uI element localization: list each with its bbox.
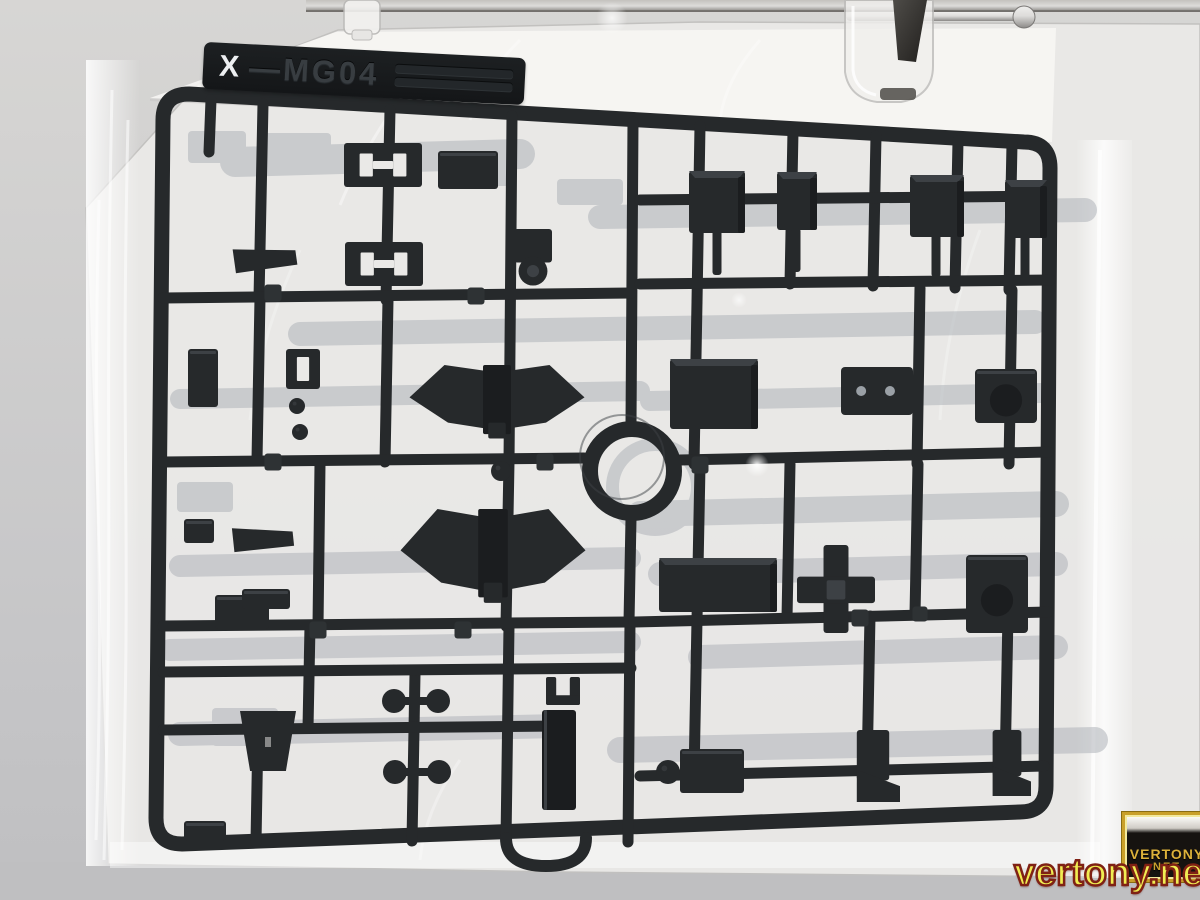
runner-bar: [385, 300, 388, 462]
runner-number-tag: [310, 622, 327, 639]
runner-number-tag: [265, 285, 282, 302]
runner-part-box: [680, 749, 744, 793]
runner-part-ball: [656, 760, 680, 784]
runner-bar: [917, 288, 920, 464]
runner-part-box: [188, 349, 218, 407]
runner-label-prefix: X: [218, 51, 240, 82]
runner-part-box: [242, 589, 290, 609]
runner-part-block: [777, 172, 817, 230]
bag-glare-spot: [745, 453, 769, 477]
runner-part-block: [659, 558, 777, 612]
runner-part-ball: [292, 424, 308, 440]
runner-part-stem: [792, 228, 801, 272]
runner-part-plate: [841, 367, 913, 415]
rear-runner-part: [263, 133, 331, 167]
runner-number-tag: [265, 454, 282, 471]
runner-bar: [318, 464, 320, 626]
runner-part-stem: [932, 231, 941, 277]
runner-bar: [640, 280, 1050, 284]
bag-glare-spot: [731, 292, 747, 308]
runner-part-block: [689, 171, 745, 233]
runner-part-stem: [1021, 234, 1030, 278]
runner-part-ball: [491, 461, 511, 481]
bag-glare-spot: [596, 2, 628, 34]
runner-bar: [631, 122, 633, 424]
runner-part-block: [1005, 180, 1047, 238]
bag-left-seal: [86, 60, 140, 866]
rear-runner-part: [557, 179, 623, 205]
runner-part-stem: [713, 229, 722, 275]
watermark-url: vertony.net: [1014, 852, 1200, 895]
runner-bar: [628, 622, 630, 842]
runner-bar: [163, 458, 584, 462]
runner-part-box: [438, 151, 498, 189]
runner-number-tag: [537, 454, 554, 471]
runner-bar: [873, 136, 876, 286]
runner-part-ball: [289, 398, 305, 414]
rear-runner-part: [188, 131, 246, 163]
runner-part-bracketH: [345, 242, 423, 286]
runner-part-box: [184, 821, 226, 841]
bag-right-fold: [1076, 140, 1132, 878]
runner-bar: [163, 293, 631, 298]
bag-clip-nub: [352, 30, 372, 40]
runner-bar: [787, 464, 790, 618]
runner-bar: [308, 626, 310, 728]
rear-runner-bar: [170, 642, 630, 650]
runner-label-code: —MG04: [248, 52, 380, 90]
runner-number-tag: [468, 288, 485, 305]
runner-number-tag: [455, 622, 472, 639]
photo-stage: X —MG04 VERTONY NET vertony.net: [0, 0, 1200, 900]
runner-bar: [629, 519, 631, 622]
runner-bar: [209, 100, 211, 152]
bag-clip: [344, 0, 380, 34]
runner-part-box: [184, 519, 214, 543]
runner-bar: [506, 626, 509, 840]
hanger-rail-shadow: [306, 10, 1200, 12]
runner-part-slab: [542, 710, 576, 810]
runner-bar: [163, 726, 558, 730]
logo-sheen: [1127, 817, 1200, 833]
runner-part-joint: [966, 555, 1028, 633]
runner-label-embossed-text: [395, 65, 514, 92]
runner-part-bracketH: [344, 143, 422, 187]
runner-part-slot: [286, 349, 320, 389]
scene-illustration: [0, 0, 1200, 900]
runner-part-block: [910, 175, 964, 237]
runner-bar: [915, 464, 918, 614]
runner-number-tag: [852, 610, 869, 627]
runner-bar: [257, 298, 260, 460]
runner-number-tag: [913, 607, 928, 622]
clamp-foot: [880, 88, 916, 100]
runner-part-joint: [975, 369, 1037, 423]
runner-part-block: [670, 359, 758, 429]
clamp-rod-ball: [1013, 6, 1035, 28]
rear-runner-part: [177, 482, 233, 512]
runner-bar: [163, 668, 631, 672]
runner-number-tag: [692, 457, 709, 474]
